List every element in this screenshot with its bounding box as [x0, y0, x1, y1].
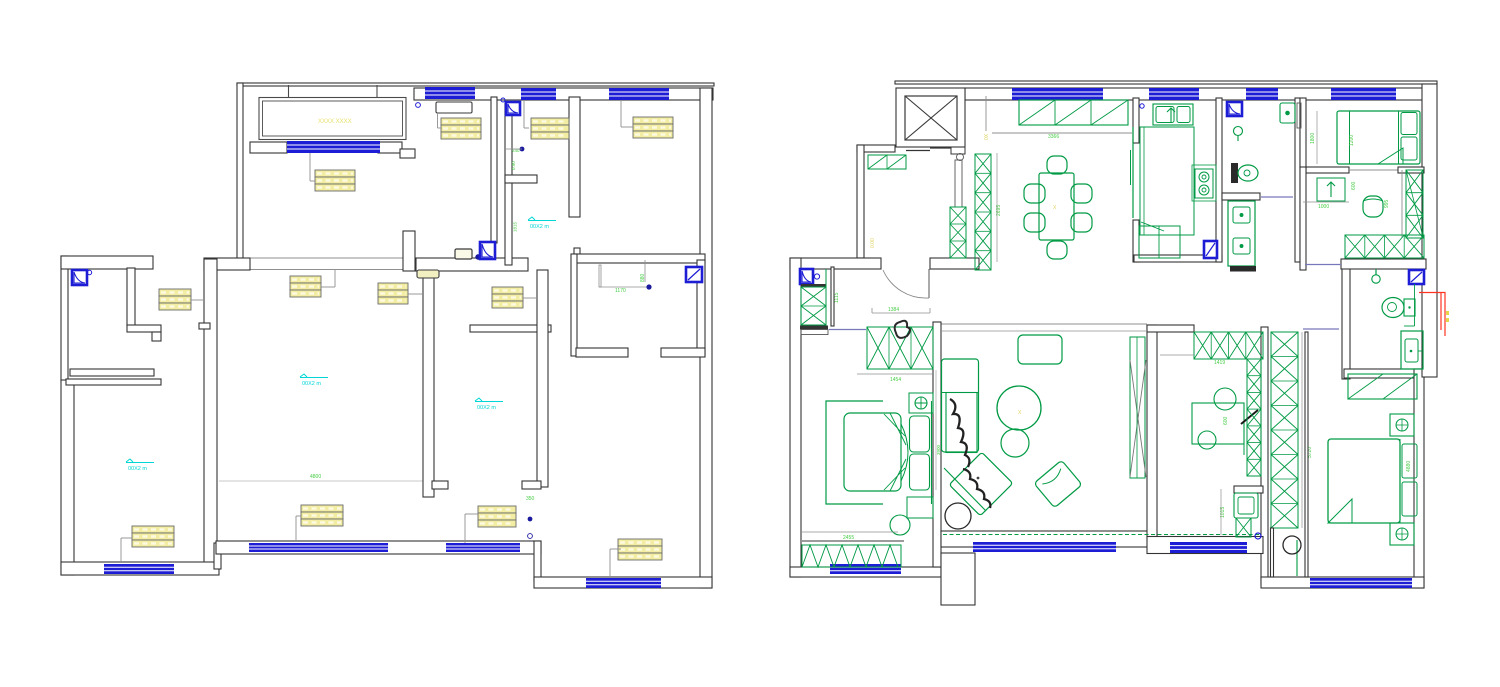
svg-text:600: 600	[1223, 416, 1229, 425]
svg-text:350: 350	[526, 496, 535, 502]
svg-text:995: 995	[1384, 199, 1390, 208]
svg-text:1800: 1800	[1310, 133, 1316, 144]
svg-text:1815: 1815	[513, 221, 518, 232]
svg-text:0X: 0X	[984, 133, 990, 140]
svg-text:1419: 1419	[1214, 360, 1225, 366]
svg-text:1384: 1384	[888, 307, 899, 313]
svg-text:1170: 1170	[615, 288, 626, 294]
svg-text:1000: 1000	[1318, 204, 1329, 210]
svg-text:4800: 4800	[310, 474, 321, 480]
svg-text:3900: 3900	[936, 444, 941, 455]
svg-text:2455: 2455	[843, 535, 854, 541]
svg-text:00X2 m: 00X2 m	[530, 224, 549, 230]
svg-text:0.90: 0.90	[511, 161, 516, 170]
svg-text:600: 600	[1351, 181, 1357, 190]
svg-text:00X2 m: 00X2 m	[477, 405, 496, 411]
svg-text:1115: 1115	[834, 292, 840, 303]
svg-text:4880: 4880	[1406, 461, 1412, 472]
svg-text:1454: 1454	[890, 377, 901, 383]
svg-text:00X2 m: 00X2 m	[128, 466, 147, 472]
svg-text:0.00: 0.00	[870, 238, 876, 248]
svg-text:XXXX XXXX: XXXX XXXX	[318, 119, 352, 125]
svg-text:3366: 3366	[1048, 134, 1059, 140]
svg-text:00X2 m: 00X2 m	[302, 381, 321, 387]
svg-text:1200: 1200	[1349, 135, 1355, 146]
